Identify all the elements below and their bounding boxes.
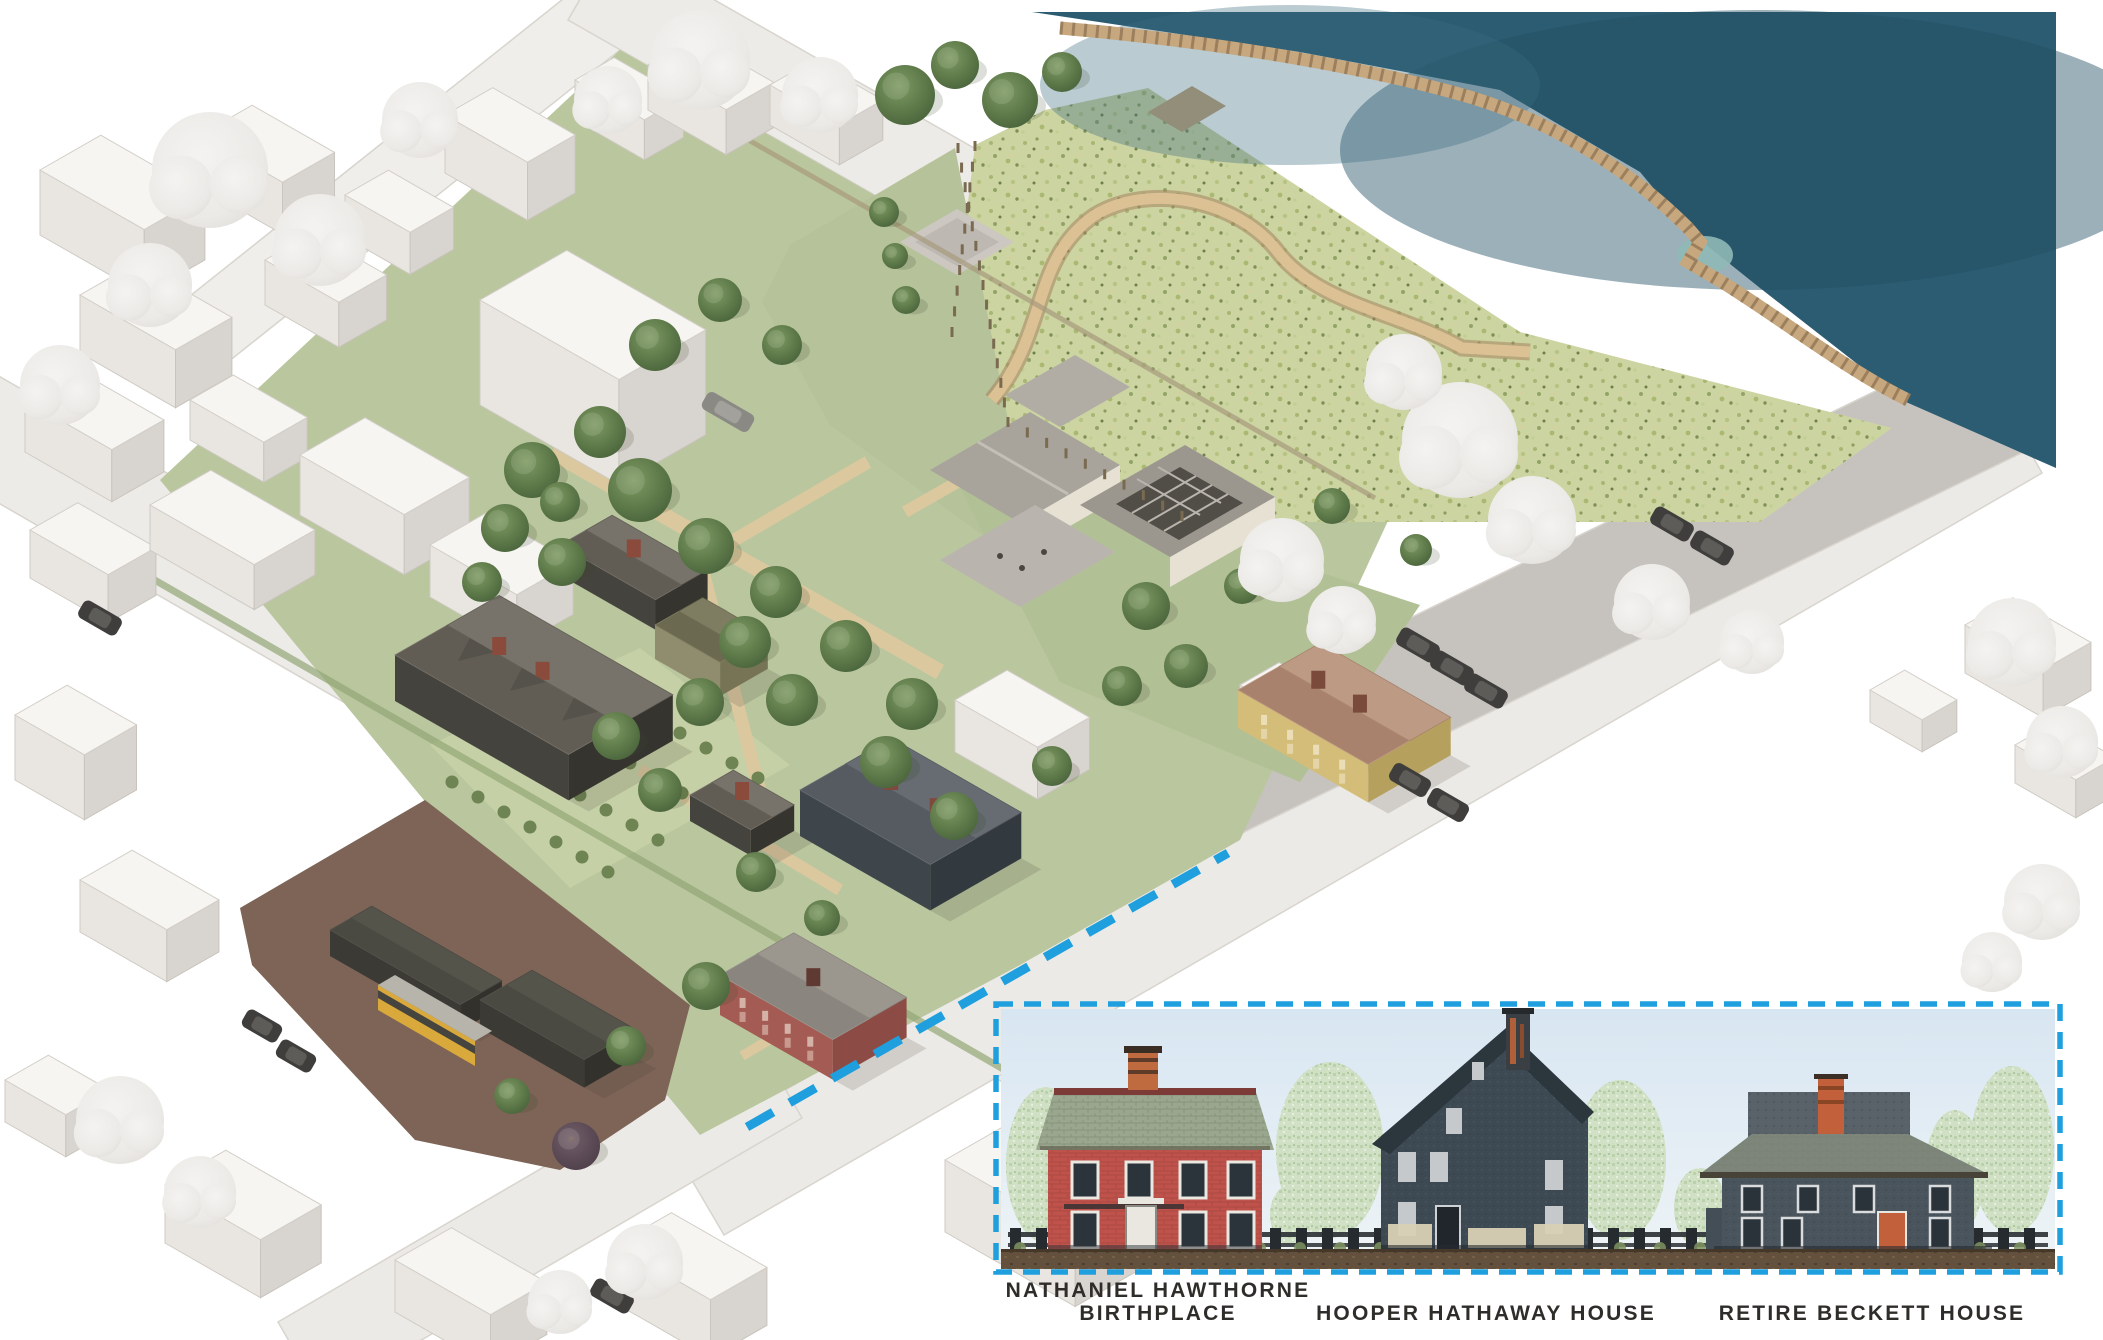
garden-shrub [726,757,739,770]
inset-fence-post [1270,1228,1281,1252]
fence-post [966,203,969,213]
garden-shrub [524,821,537,834]
label-line: HOOPER HATHAWAY HOUSE [1276,1302,1696,1325]
inset-fence-post [1348,1228,1359,1252]
fence-post [1161,501,1164,511]
fence-post [1003,397,1006,407]
label-line: NATHANIEL HAWTHORNE [948,1279,1368,1302]
fence-post [974,241,977,251]
fence-post [964,182,967,192]
fence-post [982,280,985,290]
fence-post [951,327,954,337]
inset-fence-post [1634,1228,1645,1252]
chimney [492,637,506,655]
garden-shrub [674,727,687,740]
fence-post [992,339,995,349]
fence-post [953,306,956,316]
inset-fence-post [1322,1228,1333,1252]
site-plan-rendering: NATHANIEL HAWTHORNE BIRTHPLACE HOOPER HA… [0,0,2103,1340]
fence-post [974,141,977,151]
garden-shrub [652,834,665,847]
garden-shrub [626,819,639,832]
fence-post [1084,459,1087,469]
fence-post [1142,490,1145,500]
fence-post [978,260,981,270]
chimney [627,539,641,557]
fence-post [958,265,961,275]
fence-post [957,143,960,153]
fence-post [1065,448,1068,458]
chimney [1353,695,1367,713]
fence-post [971,221,974,231]
fence-post [1007,417,1010,427]
fence-post [956,286,959,296]
garden-shrub [600,804,613,817]
inset-ground [1001,1252,2055,1269]
hathaway-door [1436,1206,1460,1250]
chimney [735,782,749,800]
fence-post [996,358,999,368]
front-door [1126,1206,1156,1250]
fence-post [1123,480,1126,490]
inset-ground-line [1001,1249,2055,1252]
fence-post [999,378,1002,388]
garden-shrub [472,791,485,804]
fence-post [1026,427,1029,437]
label-retire-beckett-house: RETIRE BECKETT HOUSE [1662,1302,2082,1325]
chimney [806,968,820,986]
garden-shrub [446,776,459,789]
fence-post [1103,469,1106,479]
fence-post [960,163,963,173]
garden-shrub [550,836,563,849]
fence-post [1045,438,1048,448]
label-hooper-hathaway-house: HOOPER HATHAWAY HOUSE [1276,1302,1696,1325]
fence-post [963,224,966,234]
elevation-inset-panel [996,1004,2060,1272]
beckett-door [1878,1212,1906,1250]
aerial-site-illustration [0,0,2103,1340]
garden-shrub [576,851,589,864]
garden-shrub [602,866,615,879]
garden-shrub [498,806,511,819]
label-line: RETIRE BECKETT HOUSE [1662,1302,2082,1325]
inset-fence-post [1998,1228,2009,1252]
fence-post [985,300,988,310]
fence-post [968,182,971,192]
fence-post [971,162,974,172]
fence-post [989,319,992,329]
garden-shrub [700,742,713,755]
door-cornice [1118,1198,1164,1204]
fence-post [1181,511,1184,521]
chimney [1311,671,1325,689]
inset-fence-post [1036,1228,1047,1252]
fence-post [961,244,964,254]
